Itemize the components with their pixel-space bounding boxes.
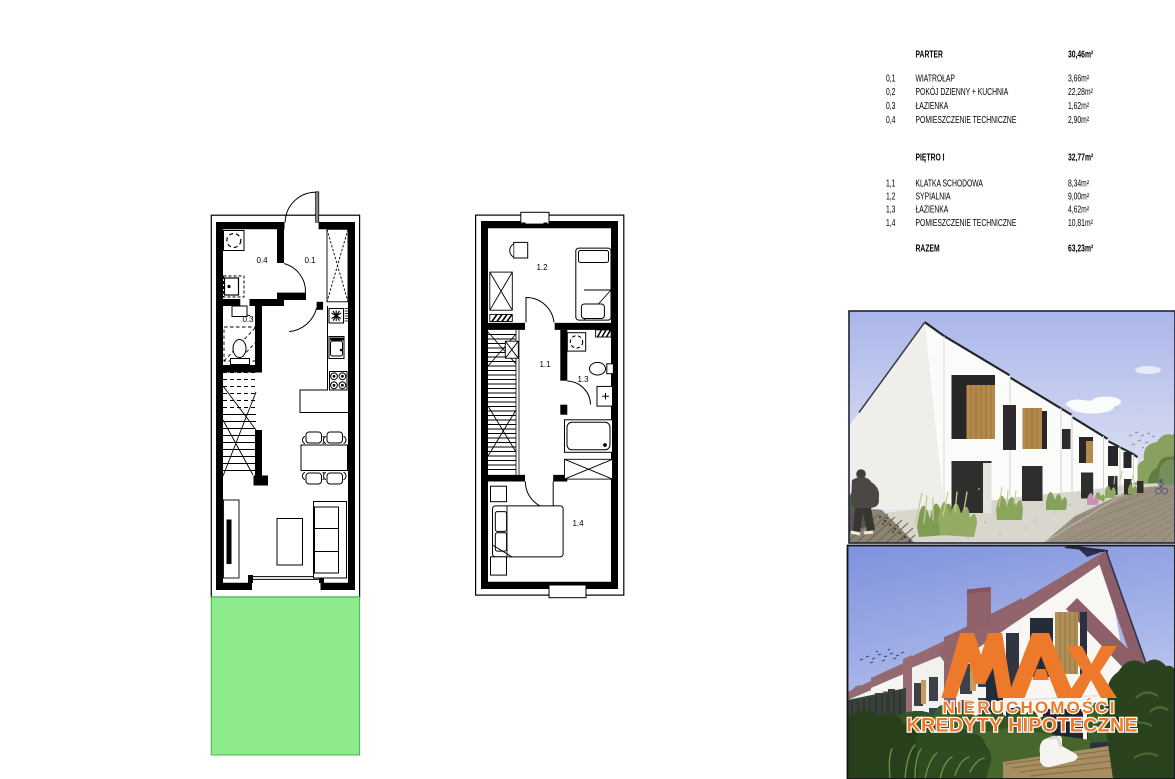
- svg-text:1.3: 1.3: [577, 375, 589, 384]
- svg-text:1,1: 1,1: [886, 177, 896, 189]
- svg-text:KREDYTY HIPOTECZNE: KREDYTY HIPOTECZNE: [907, 715, 1138, 737]
- svg-text:ŁAZIENKA: ŁAZIENKA: [916, 203, 949, 215]
- svg-text:30,46m²: 30,46m²: [1068, 48, 1093, 60]
- svg-text:22,28m²: 22,28m²: [1068, 86, 1093, 98]
- svg-text:POMIESZCZENIE TECHNICZNE: POMIESZCZENIE TECHNICZNE: [916, 217, 1017, 229]
- svg-text:KLATKA SCHODOWA: KLATKA SCHODOWA: [916, 177, 984, 189]
- svg-text:POKÓJ DZIENNY + KUCHNIA: POKÓJ DZIENNY + KUCHNIA: [916, 86, 1009, 98]
- svg-text:63,23m²: 63,23m²: [1068, 242, 1093, 254]
- svg-text:0.4: 0.4: [256, 256, 268, 265]
- svg-text:0,2: 0,2: [886, 86, 896, 98]
- svg-text:POMIESZCZENIE TECHNICZNE: POMIESZCZENIE TECHNICZNE: [916, 114, 1017, 126]
- svg-text:ŁAZIENKA: ŁAZIENKA: [916, 100, 949, 112]
- svg-text:PARTER: PARTER: [916, 48, 943, 60]
- svg-text:0,4: 0,4: [886, 114, 896, 126]
- svg-text:1,3: 1,3: [886, 203, 896, 215]
- svg-text:2,90m²: 2,90m²: [1068, 114, 1089, 126]
- svg-text:PIĘTRO I: PIĘTRO I: [916, 151, 945, 163]
- svg-text:9,00m²: 9,00m²: [1068, 190, 1089, 202]
- svg-text:0.1: 0.1: [304, 256, 316, 265]
- svg-text:1.1: 1.1: [539, 360, 551, 369]
- svg-text:32,77m²: 32,77m²: [1068, 151, 1093, 163]
- svg-text:4,62m²: 4,62m²: [1068, 203, 1089, 215]
- svg-text:1,62m²: 1,62m²: [1068, 100, 1089, 112]
- svg-text:0,1: 0,1: [886, 72, 896, 84]
- svg-text:1.4: 1.4: [572, 519, 584, 528]
- svg-text:0,3: 0,3: [886, 100, 896, 112]
- svg-text:WIATROŁAP: WIATROŁAP: [916, 72, 956, 84]
- svg-text:1,2: 1,2: [886, 190, 896, 202]
- svg-text:RAZEM: RAZEM: [916, 242, 940, 254]
- svg-text:8,34m²: 8,34m²: [1068, 177, 1089, 189]
- svg-text:3,66m²: 3,66m²: [1068, 72, 1089, 84]
- svg-text:10,81m²: 10,81m²: [1068, 217, 1093, 229]
- svg-text:SYPIALNIA: SYPIALNIA: [916, 190, 951, 202]
- svg-text:1,4: 1,4: [886, 217, 896, 229]
- svg-text:1.2: 1.2: [536, 263, 548, 272]
